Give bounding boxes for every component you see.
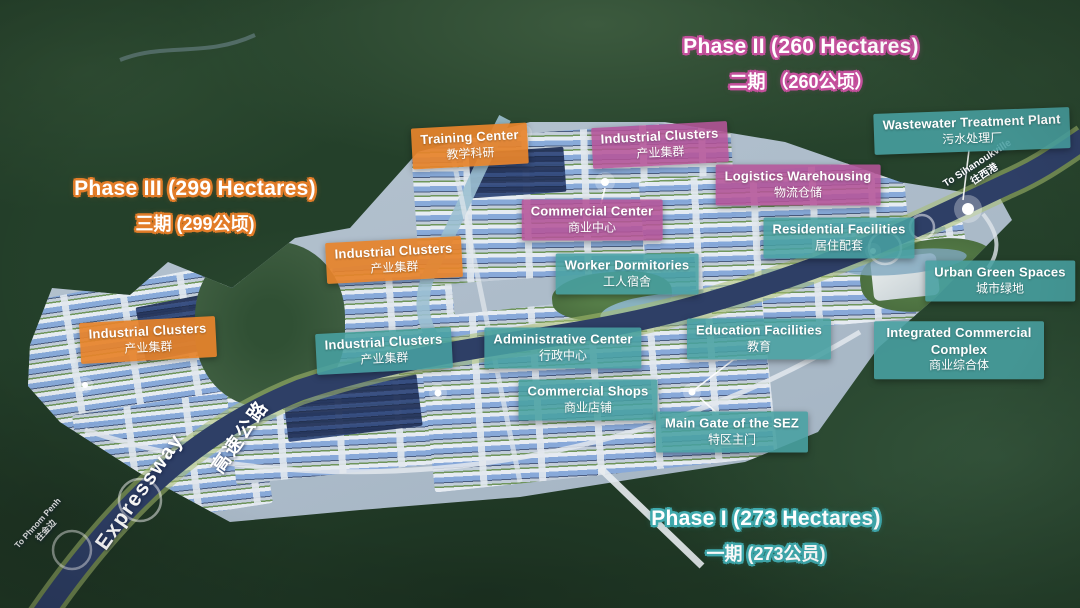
urban-green-spaces-label-en: Urban Green Spaces	[934, 265, 1066, 282]
urban-green-spaces-label-zh: 城市绿地	[934, 281, 1066, 296]
logistics-warehousing-label-zh: 物流仓储	[725, 185, 872, 200]
education-facilities-label-zh: 教育	[696, 339, 822, 354]
administrative-center-label-en: Administrative Center	[493, 332, 632, 349]
commercial-center-label-zh: 商业中心	[531, 220, 654, 235]
phase-2-title-en: Phase II (260 Hectares)	[665, 35, 937, 59]
administrative-center-label-zh: 行政中心	[493, 348, 632, 363]
logistics-warehousing-label-en: Logistics Warehousing	[725, 169, 872, 186]
phase-3-title-zh: 三期 (299公顷)	[62, 210, 328, 236]
main-gate-of-the-sez-label-zh: 特区主门	[665, 432, 799, 447]
education-facilities-label-en: Education Facilities	[696, 323, 822, 340]
integrated-commercial-complex-label: Integrated Commercial Complex商业综合体	[874, 321, 1044, 379]
worker-dormitories-label-en: Worker Dormitories	[565, 258, 690, 275]
commercial-center-label-en: Commercial Center	[531, 204, 654, 221]
residential-facilities-label-en: Residential Facilities	[772, 222, 905, 239]
integrated-commercial-complex-label-en: Integrated Commercial Complex	[883, 325, 1035, 358]
residential-facilities-label-zh: 居住配套	[772, 238, 905, 253]
integrated-commercial-complex-label-zh: 商业综合体	[883, 358, 1035, 373]
phase-2-title: Phase II (260 Hectares) 二期 （260公顷）	[665, 35, 937, 94]
worker-dormitories-label: Worker Dormitories工人宿舍	[556, 254, 699, 295]
industrial-clusters-central-label: Industrial Clusters产业集群	[325, 236, 463, 284]
worker-dormitories-label-zh: 工人宿舍	[565, 274, 690, 289]
commercial-center-label: Commercial Center商业中心	[522, 200, 663, 241]
industrial-clusters-west-label: Industrial Clusters产业集群	[79, 316, 217, 364]
phase-3-title-en: Phase III (299 Hectares)	[62, 177, 328, 201]
phase-1-title: Phase I (273 Hectares) 一期 (273公员)	[640, 507, 892, 566]
residential-facilities-label: Residential Facilities居住配套	[763, 218, 914, 259]
industrial-clusters-north-label: Industrial Clusters产业集群	[591, 121, 729, 169]
phase-3-title: Phase III (299 Hectares) 三期 (299公顷)	[62, 177, 328, 236]
main-gate-of-the-sez-label-en: Main Gate of the SEZ	[665, 416, 799, 433]
wastewater-treatment-plant-label: Wastewater Treatment Plant污水处理厂	[873, 107, 1070, 155]
logistics-warehousing-label: Logistics Warehousing物流仓储	[716, 165, 881, 206]
main-gate-of-the-sez-label: Main Gate of the SEZ特区主门	[656, 412, 808, 453]
phase-2-title-zh: 二期 （260公顷）	[665, 68, 937, 94]
industrial-clusters-south-label: Industrial Clusters产业集群	[315, 327, 453, 375]
urban-green-spaces-label: Urban Green Spaces城市绿地	[925, 261, 1075, 302]
education-facilities-label: Education Facilities教育	[687, 319, 831, 360]
phase-1-title-zh: 一期 (273公员)	[640, 540, 892, 566]
commercial-shops-label: Commercial Shops商业店铺	[519, 380, 658, 421]
administrative-center-label: Administrative Center行政中心	[484, 328, 641, 369]
training-center-label: Training Center教学科研	[411, 122, 529, 169]
commercial-shops-label-zh: 商业店铺	[528, 400, 649, 415]
phase-1-title-en: Phase I (273 Hectares)	[640, 507, 892, 531]
commercial-shops-label-en: Commercial Shops	[528, 384, 649, 401]
sez-masterplan-screenshot: { "phases": { "phase2": { "en": "Phase I…	[0, 0, 1080, 608]
